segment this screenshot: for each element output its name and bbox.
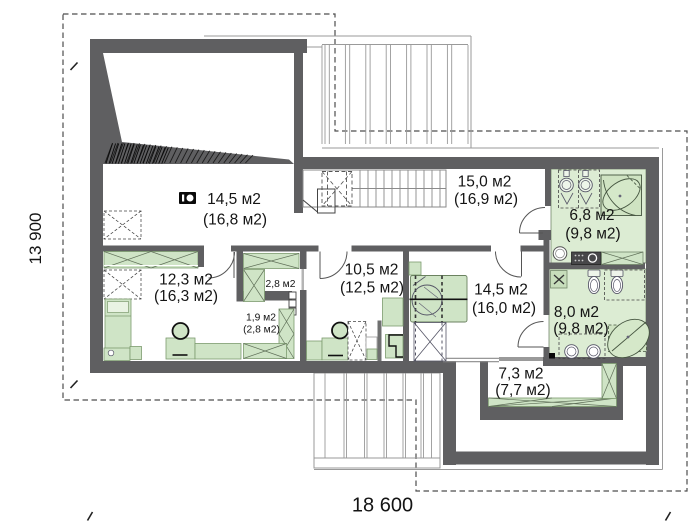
svg-text:12,3 м2: 12,3 м2 — [159, 271, 213, 288]
svg-text:(9,8 м2): (9,8 м2) — [553, 321, 608, 338]
svg-text:(7,7 м2): (7,7 м2) — [495, 382, 550, 399]
svg-text:(16,9 м2): (16,9 м2) — [454, 191, 518, 208]
svg-text:14,5 м2: 14,5 м2 — [207, 191, 261, 208]
svg-text:(16,8 м2): (16,8 м2) — [203, 211, 267, 228]
svg-text:8,0 м2: 8,0 м2 — [554, 304, 599, 321]
svg-text:(16,0 м2): (16,0 м2) — [472, 300, 536, 317]
svg-text:14,5 м2: 14,5 м2 — [474, 281, 528, 298]
svg-text:(9,8 м2): (9,8 м2) — [565, 226, 620, 243]
svg-text:1,9 м2: 1,9 м2 — [246, 313, 276, 324]
svg-text:(16,3 м2): (16,3 м2) — [154, 288, 218, 305]
svg-text:18 600: 18 600 — [352, 495, 413, 517]
svg-text:(2,8 м2): (2,8 м2) — [243, 325, 280, 336]
svg-text:2,8 м2: 2,8 м2 — [266, 279, 296, 290]
svg-text:13 900: 13 900 — [26, 213, 45, 265]
svg-text:7,3 м2: 7,3 м2 — [498, 366, 543, 383]
svg-text:10,5 м2: 10,5 м2 — [345, 261, 399, 278]
svg-text:(12,5 м2): (12,5 м2) — [340, 280, 404, 297]
svg-text:15,0 м2: 15,0 м2 — [458, 174, 512, 191]
svg-text:6,8 м2: 6,8 м2 — [569, 207, 614, 224]
